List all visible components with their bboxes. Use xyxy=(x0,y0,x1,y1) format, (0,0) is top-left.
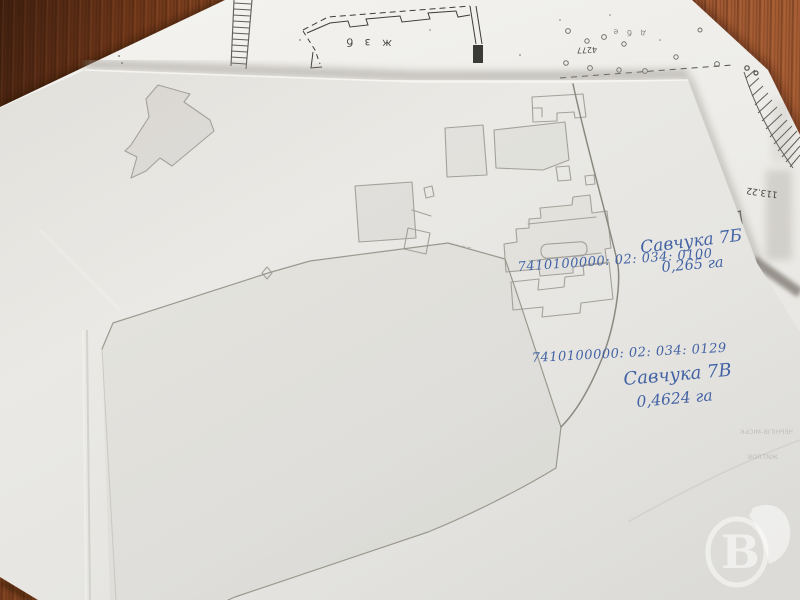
toner-smudge xyxy=(766,170,792,260)
small-dark-building xyxy=(473,45,483,63)
showthrough-line-1: ЧЕРНІГІВ-МІСЬК xyxy=(740,428,793,436)
showthrough-line-2: ЖИТЛОВ xyxy=(748,453,778,461)
site-plan-sheet: 7410100000: 02: 034: 0100 Савчука 7Б 0,2… xyxy=(0,70,800,600)
building-b2 xyxy=(494,122,569,170)
watermark-letter: В xyxy=(721,525,760,579)
photo-of-cadastral-plan: ж з б 4277 д б е 113.22 xyxy=(0,0,800,600)
scene-canvas: ж з б 4277 д б е 113.22 xyxy=(0,0,800,600)
printed-corner-note: д б е xyxy=(610,27,646,38)
building-square-2 xyxy=(445,125,487,177)
building-label: ж з б xyxy=(342,35,392,50)
printed-mark-4277: 4277 xyxy=(577,45,598,55)
